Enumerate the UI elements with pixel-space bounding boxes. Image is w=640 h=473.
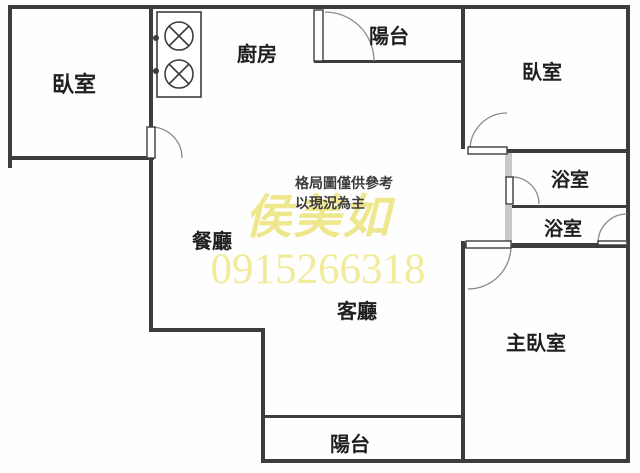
- label-living: 客廳: [336, 299, 377, 323]
- wall-bath-left-upper: [505, 153, 512, 178]
- watermark-phone-number: 0915266318: [211, 246, 426, 293]
- wall-bath-upper-bottom: [506, 205, 630, 208]
- wall-west-upper: [149, 5, 153, 131]
- label-balcony-top: 陽台: [369, 24, 409, 48]
- wall-west-mid: [149, 159, 153, 331]
- wall-balcony-bottom-top: [261, 415, 463, 418]
- door-bath-lower: [598, 214, 627, 245]
- wall-top: [8, 5, 630, 9]
- wall-bottom: [261, 459, 630, 463]
- label-bedroom-right: 臥室: [522, 60, 562, 84]
- door-bedroom-left: [147, 127, 182, 158]
- wall-bedroom-right-bottom: [506, 149, 630, 153]
- door-master-bedroom: [466, 241, 511, 289]
- label-bedroom-left: 臥室: [52, 72, 96, 97]
- wall-west-lower: [261, 328, 265, 463]
- wall-bedroom-right-left: [461, 5, 465, 149]
- wall-step: [149, 328, 265, 332]
- floor-plan-image: 侯美如 0915266318: [0, 0, 640, 473]
- wall-bath-left-lower: [505, 205, 512, 245]
- label-master-bedroom: 主臥室: [506, 331, 566, 355]
- wall-right: [626, 5, 630, 463]
- door-balcony-top: [314, 10, 374, 61]
- label-dining: 餐廳: [192, 229, 232, 253]
- label-kitchen: 廚房: [237, 42, 277, 66]
- wall-master-left: [461, 241, 465, 463]
- door-bedroom-right: [468, 113, 507, 154]
- wall-bedroom-left-bottom: [8, 156, 154, 160]
- wall-left: [8, 5, 12, 168]
- label-bath-upper: 浴室: [551, 168, 589, 191]
- label-balcony-bottom: 陽台: [330, 432, 370, 456]
- door-bath-upper: [506, 177, 539, 204]
- wall-balcony-top-bottom: [314, 60, 464, 63]
- stove-knob: [153, 35, 159, 41]
- disclaimer-line2: 以現況為主: [295, 195, 365, 211]
- label-bath-lower: 浴室: [544, 217, 582, 240]
- stove-knob: [153, 68, 159, 74]
- stove-icon: [153, 12, 201, 97]
- disclaimer-line1: 格局圖僅供參考: [295, 175, 393, 191]
- floor-plan-drawing: 侯美如 0915266318: [0, 0, 640, 473]
